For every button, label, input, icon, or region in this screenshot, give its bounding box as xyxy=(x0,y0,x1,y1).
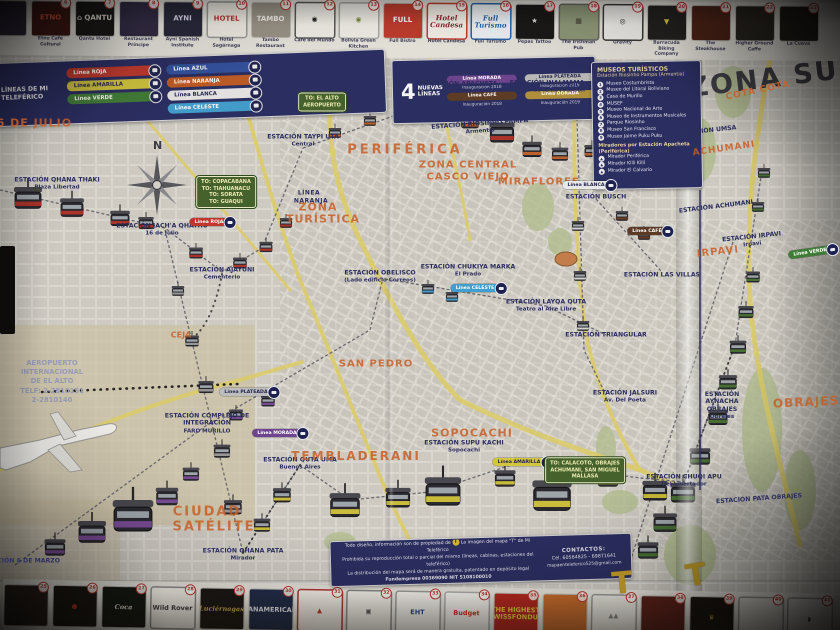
ad-number-badge: 15 xyxy=(456,0,467,11)
museum-number: 5 xyxy=(598,108,604,114)
ad-caption: Etno Café Cultural xyxy=(30,36,71,47)
new-line-entry: Línea CAFÉInauguración 2018 xyxy=(447,91,517,106)
ad-number-badge: 18 xyxy=(588,1,599,12)
inauguration-year: Inauguración 2018 xyxy=(447,83,517,89)
ad-tile: 40 xyxy=(737,595,784,630)
cable-car-icon xyxy=(149,89,162,102)
inauguration-year: Inauguración 2018 xyxy=(447,100,517,106)
ad-number-badge: 16 xyxy=(500,1,511,12)
legend-line-pill: Línea NARANJA xyxy=(167,74,259,87)
legend-line-pill: Línea DORADA xyxy=(525,89,595,98)
stadium xyxy=(555,252,577,266)
ad-tile: 41◗ xyxy=(786,596,833,630)
ad-caption: La Cueva xyxy=(778,42,819,48)
museum-number: 7 xyxy=(598,122,604,128)
museums-legend: MUSEOS TURÍSTICOS Estación Riosinho Pamp… xyxy=(591,60,703,190)
museums-subtitle: Estación Riosinho Pampa (Armentia) xyxy=(597,72,695,79)
cable-car-icon xyxy=(248,60,261,73)
ad-caption: The Irishman Pub xyxy=(558,40,599,51)
ad-tile: 14FULLFull Bistro xyxy=(382,1,423,45)
ad-tile: 34Budget xyxy=(443,590,490,630)
ad-tile: 11TAMBOTambo Restaurant xyxy=(250,0,291,49)
ad-tile: 21The Steakhouse xyxy=(690,3,731,52)
ad-caption: Bolivia Green Kitchen xyxy=(338,38,379,49)
ad-caption: Hotel Candesa xyxy=(426,39,467,45)
ad-tile: 39♛ xyxy=(688,594,735,630)
museum-number: 3 xyxy=(597,95,603,101)
cable-car-icon xyxy=(249,99,262,112)
legend-line-pill: Línea PLATEADA xyxy=(525,72,595,81)
inauguration-year: Inauguración 2019 xyxy=(525,81,595,87)
ad-tile: 17★Pepas Tattoo xyxy=(514,2,555,46)
ad-tile: 30PANAMERICAN xyxy=(247,586,294,630)
ad-caption: Gravity xyxy=(602,40,643,46)
cable-car-icon xyxy=(249,86,262,99)
museum-name: Museo Jaime Puku Puku xyxy=(607,133,662,141)
ad-caption: Ayni Spanish Institute xyxy=(162,37,203,48)
ad-caption: Barracuda Biking Company xyxy=(646,41,687,58)
ad-tile: 23La Cueva xyxy=(778,4,819,48)
legend-line-pill: Línea BLANCA xyxy=(167,87,259,100)
ad-caption: Hotel Sagárnaga xyxy=(206,38,247,49)
photo-artifact xyxy=(0,246,15,334)
museum-number: 2 xyxy=(597,89,603,95)
map-photo: N LA PAZ ZONA SUR AEROPUERTOINTERNACIONA… xyxy=(0,0,840,630)
ad-caption: Pepas Tattoo xyxy=(514,40,555,46)
new-lines-label: NUEVAS LÍNEAS xyxy=(418,85,444,98)
ad-number-badge: 21 xyxy=(720,2,731,13)
ad-tile: 35THE HIGHEST SWISSFONDUE xyxy=(492,591,539,630)
legend-title: LÍNEAS DE MI TELEFÉRICO xyxy=(0,84,67,103)
ad-tile: 12◉Café del Mundo xyxy=(294,0,335,44)
ad-tile: 36 xyxy=(541,591,588,630)
mirador-icon: ▲ xyxy=(599,169,605,175)
ad-number-badge: 20 xyxy=(676,2,687,13)
ad-logo xyxy=(0,1,26,35)
ad-tile: 29Luciérnagas xyxy=(198,585,245,630)
new-lines-legend: 4 NUEVAS LÍNEAS Línea MORADAInauguración… xyxy=(391,56,596,124)
ad-tile: 22Higher Ground Caffe xyxy=(734,3,775,52)
museum-number: 1 xyxy=(597,82,603,88)
copyright-text: Todo diseño, información son de propieda… xyxy=(334,537,541,586)
mirador-icon: ▲ xyxy=(599,162,605,168)
legend-line-pill: Línea CELESTE xyxy=(168,100,260,113)
legend-line-pill: Línea AZUL xyxy=(166,61,258,74)
contacts-block: CONTACTOS: Cel. 60564825 - 69871641 mapa… xyxy=(541,545,628,569)
museum-number: 4 xyxy=(598,102,604,108)
ad-tile: 38 xyxy=(639,593,686,630)
ad-tile: 6ETNOEtno Café Cultural xyxy=(30,0,71,48)
new-lines-count: 4 xyxy=(401,80,416,104)
teleferico-logo: T xyxy=(452,539,459,546)
ad-tile: 20▼Barracuda Biking Company xyxy=(646,3,687,58)
ad-caption: Full Turismo xyxy=(470,39,511,45)
t-logo-mark: T xyxy=(611,565,634,602)
ad-tile: 15Hotel CandesaHotel Candesa xyxy=(426,1,467,45)
ad-number-badge: 23 xyxy=(808,3,819,14)
ad-tile: 32▣ xyxy=(345,588,392,630)
museum-number: 9 xyxy=(598,135,604,141)
ad-caption: The Steakhouse xyxy=(690,41,731,52)
svg-text:N: N xyxy=(153,139,162,152)
cable-car-icon xyxy=(149,76,162,89)
ad-caption: Tambo Restaurant xyxy=(250,38,291,49)
ad-number-badge: 22 xyxy=(764,2,775,13)
top-ad-strip: 6ETNOEtno Café Cultural7⌂ QANTUQantu Hot… xyxy=(0,0,840,61)
legend-line-pill: Línea ROJA xyxy=(66,65,158,78)
ad-tile: 33EHT xyxy=(394,589,441,630)
inauguration-year: Inauguración 2019 xyxy=(525,98,595,104)
ad-number-badge: 13 xyxy=(368,0,379,11)
mirador-icon: ▲ xyxy=(599,156,605,162)
museum-number: 8 xyxy=(598,128,604,134)
ad-tile: 26● xyxy=(51,583,98,628)
ad-tile: 16Full TurismoFull Turismo xyxy=(470,1,511,45)
panel-border-line xyxy=(699,190,701,490)
museum-item: 9Museo Jaime Puku Puku xyxy=(598,133,696,141)
cable-car-icon xyxy=(249,73,262,86)
ad-tile: 10HOTELHotel Sagárnaga xyxy=(206,0,247,49)
ad-tile: 18▦The Irishman Pub xyxy=(558,2,599,51)
ad-tile: 8Restaurant Príncipe xyxy=(118,0,159,48)
ad-caption: Full Bistro xyxy=(382,39,423,45)
copyright-line4: Fundempresa 00369090 NIT 5108100010 xyxy=(385,574,491,582)
ad-tile xyxy=(0,0,27,36)
ad-tile: 28Wild Rover xyxy=(149,585,196,630)
ad-tile: 27Coca xyxy=(100,584,147,629)
ad-caption: Qantu Hotel xyxy=(74,37,115,43)
ad-tile: 19◎Gravity xyxy=(602,2,643,46)
ad-number-badge: 17 xyxy=(544,1,555,12)
ad-tile: 25 xyxy=(2,582,49,627)
ad-number-badge: 14 xyxy=(412,0,423,11)
ad-tile: 13◉Bolivia Green Kitchen xyxy=(338,0,379,49)
new-line-entry: Línea DORADAInauguración 2019 xyxy=(525,89,595,104)
legend-line-pill: Línea CAFÉ xyxy=(447,91,517,100)
museum-number: 6 xyxy=(598,115,604,121)
cable-car-icon xyxy=(148,64,161,77)
legend-line-pill: Línea AMARILLA xyxy=(67,78,159,91)
copyright-line2: Prohibida su reproducción total o parcia… xyxy=(342,553,533,568)
mirador-name: Mirador El Calvario xyxy=(608,168,652,176)
ad-caption: Café del Mundo xyxy=(294,38,335,44)
new-line-entry: Línea MORADAInauguración 2018 xyxy=(447,74,517,89)
airport-area xyxy=(0,325,255,525)
ad-tile: 31▲ xyxy=(296,587,343,630)
new-line-entry: Línea PLATEADAInauguración 2019 xyxy=(525,72,595,87)
legend-line-pill: Línea VERDE xyxy=(67,91,159,104)
ad-caption: Higher Ground Caffe xyxy=(734,41,775,52)
mirador-item: ▲Mirador El Calvario xyxy=(599,167,697,175)
ad-tile: 7⌂ QANTUQantu Hotel xyxy=(74,0,115,42)
legend-line-pill: Línea MORADA xyxy=(447,74,517,83)
ad-number-badge: 19 xyxy=(632,2,643,13)
ad-tile: 9AYNIAyni Spanish Institute xyxy=(162,0,203,49)
copyright-bar: Todo diseño, información son de propieda… xyxy=(329,533,632,587)
ad-caption: Restaurant Príncipe xyxy=(118,37,159,48)
